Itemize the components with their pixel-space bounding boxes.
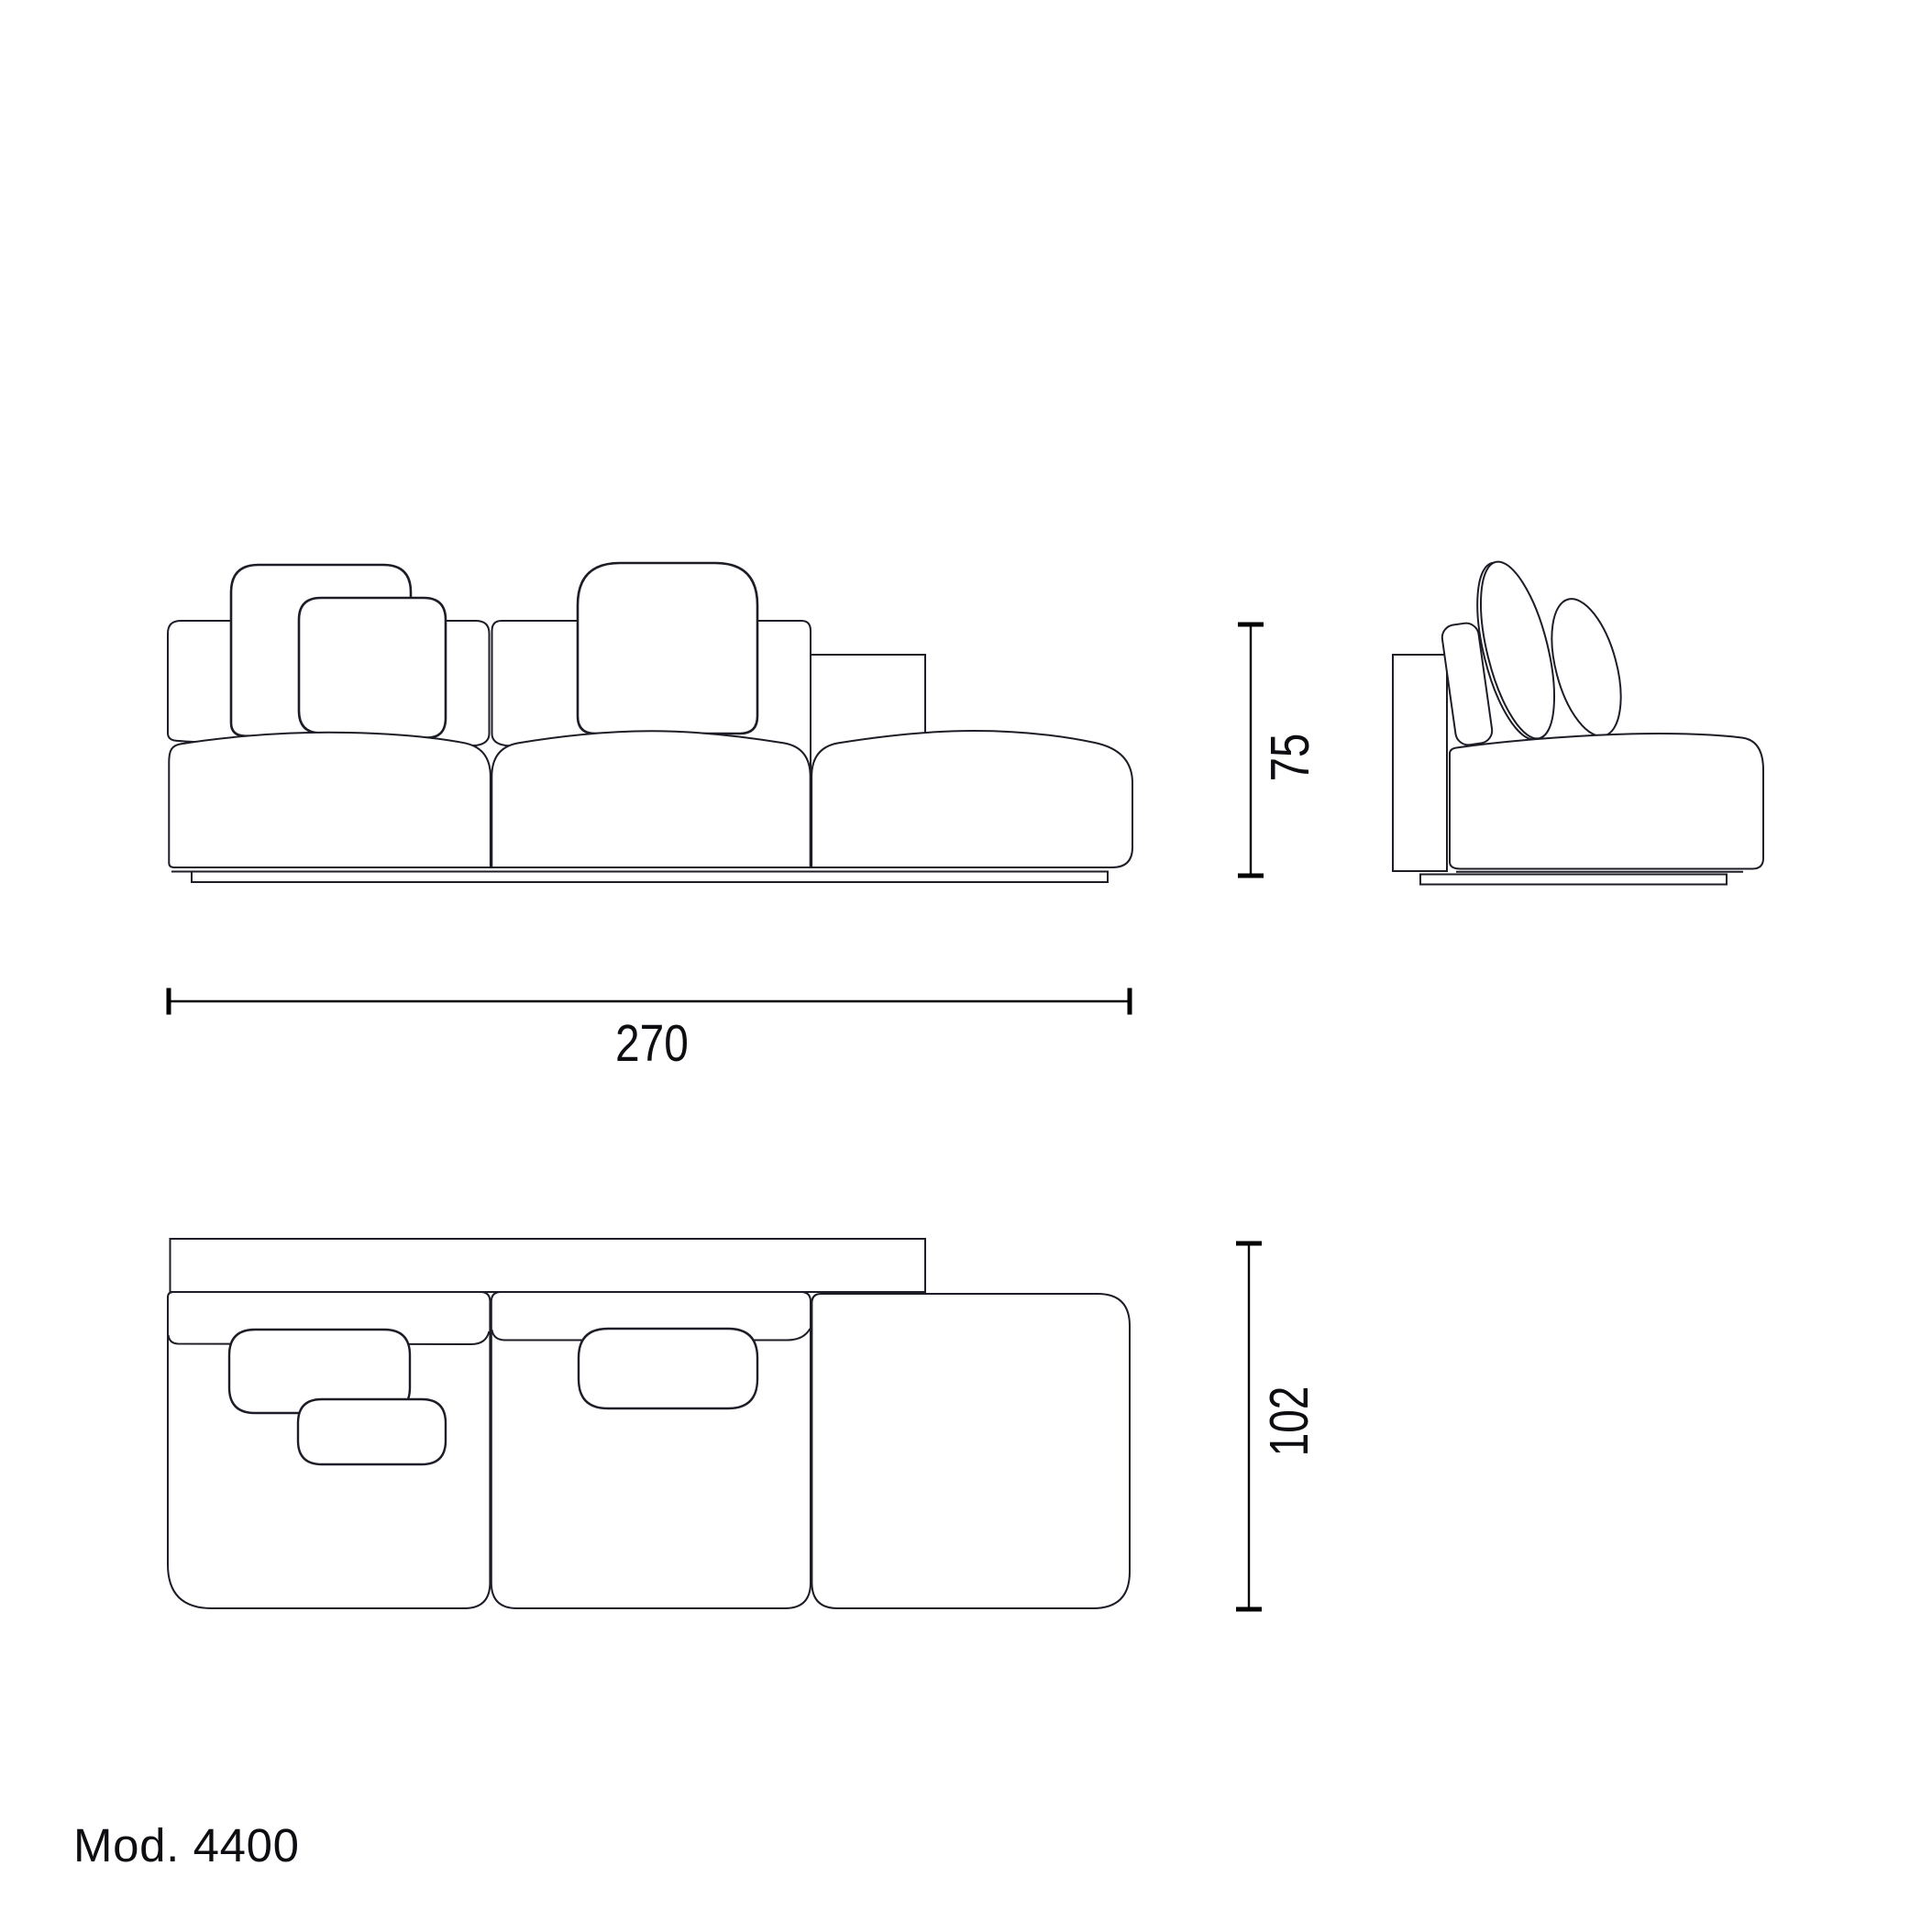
svg-text:Mod. 4400: Mod. 4400 [73, 1819, 299, 1871]
svg-text:102: 102 [1260, 1386, 1320, 1457]
svg-text:270: 270 [615, 1014, 689, 1073]
svg-text:75: 75 [1261, 734, 1320, 781]
